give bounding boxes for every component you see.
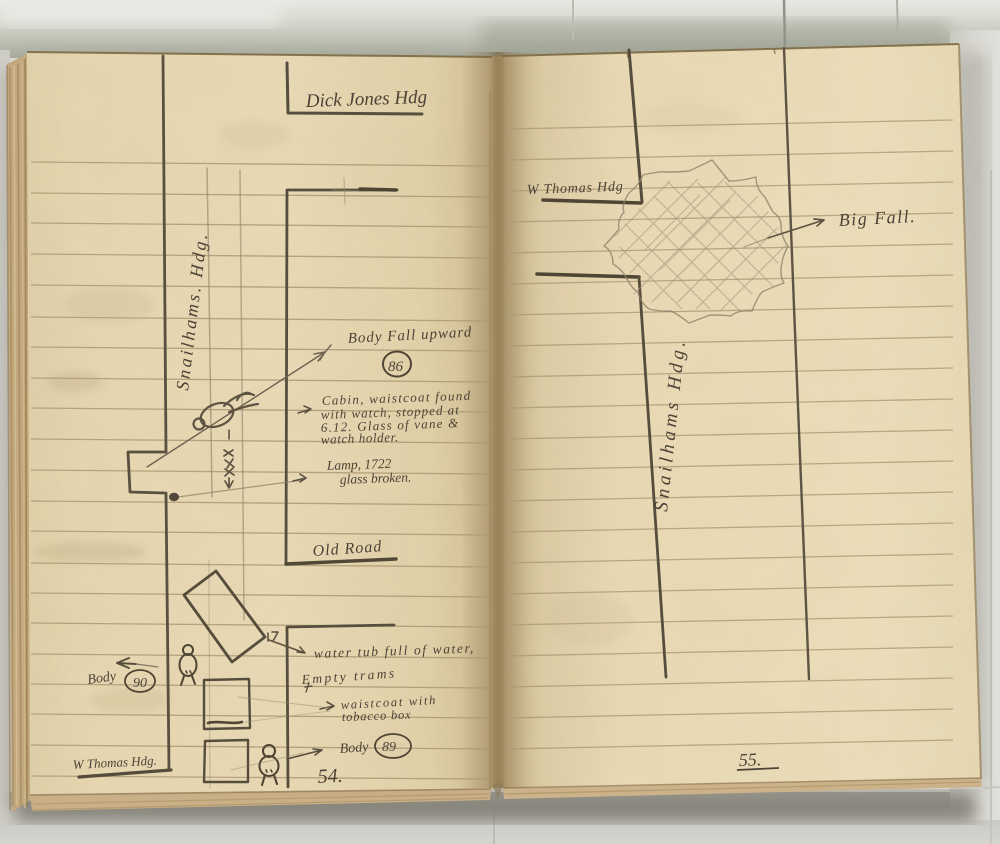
svg-text:Dick Jones Hdg: Dick Jones Hdg (304, 87, 427, 112)
svg-text:Big Fall.: Big Fall. (838, 206, 916, 230)
svg-text:89: 89 (382, 740, 396, 755)
svg-text:86: 86 (388, 359, 404, 375)
svg-text:54.: 54. (317, 765, 343, 788)
svg-text:glass broken.: glass broken. (340, 470, 412, 487)
svg-text:watch holder.: watch holder. (321, 429, 399, 447)
svg-text:55.: 55. (738, 749, 761, 770)
svg-text:90: 90 (133, 676, 147, 691)
svg-text:Body: Body (339, 740, 370, 757)
svg-text:tobacco box: tobacco box (342, 708, 412, 724)
